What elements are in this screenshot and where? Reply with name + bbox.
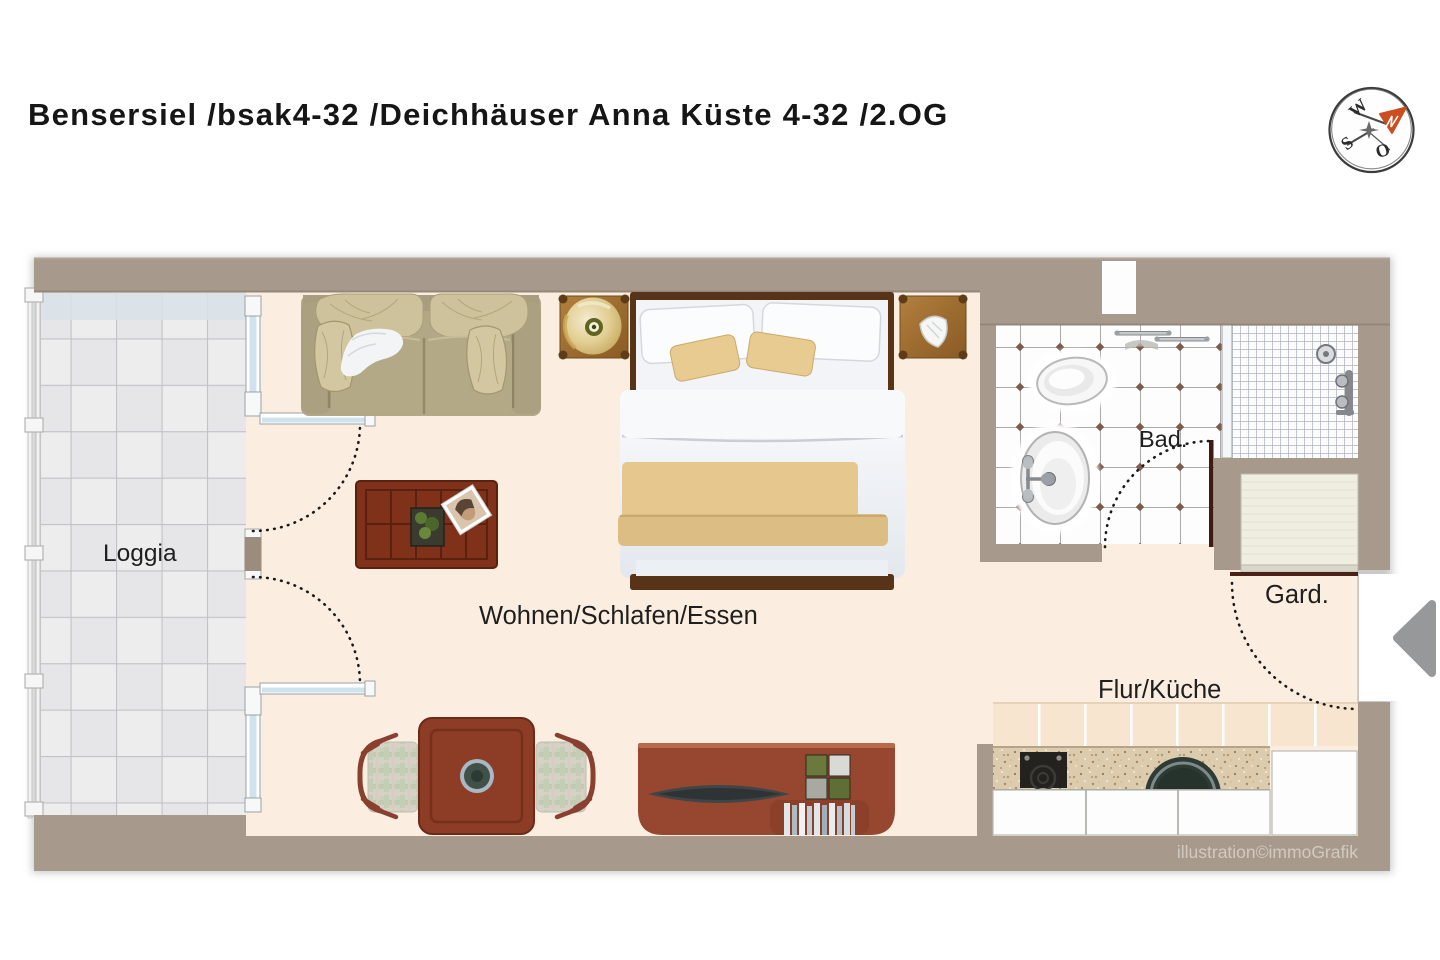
svg-text:Flur/Küche: Flur/Küche [1098,676,1221,704]
svg-text:Wohnen/Schlafen/Essen: Wohnen/Schlafen/Essen [479,602,758,630]
svg-text:Bad.: Bad. [1139,426,1187,452]
svg-text:illustration©immoGrafik: illustration©immoGrafik [1177,842,1358,862]
svg-text:Gard.: Gard. [1265,581,1329,609]
svg-text:Bensersiel /bsak4-32 /Deichhäu: Bensersiel /bsak4-32 /Deichhäuser Anna K… [28,97,948,132]
svg-text:Loggia: Loggia [103,540,177,567]
